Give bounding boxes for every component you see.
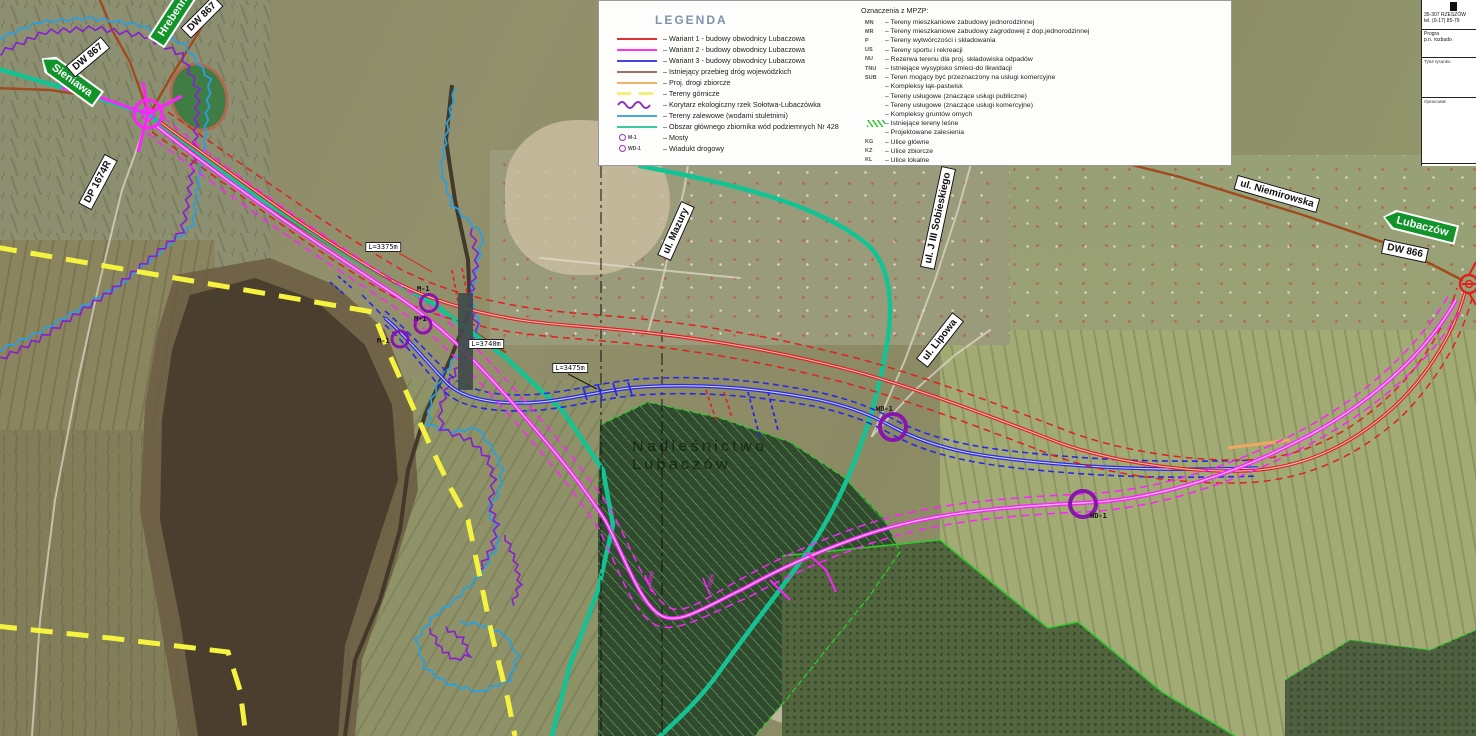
legend-swatch-line — [617, 82, 659, 84]
mpzp-item-label: Tereny wytwórczości i składowania — [885, 37, 996, 44]
mpzp-code: SUB — [859, 75, 885, 81]
mpzp-item: KLUlice lokalne — [859, 156, 1231, 165]
legend-item-label: Istniejący przebieg dróg wojewódzkich — [663, 67, 791, 76]
legend-item-label: Tereny zalewowe (wodami stuletnimi) — [663, 111, 788, 120]
legend-item: Wariant 3 - budowy obwodnicy Lubaczowa — [617, 55, 855, 66]
mpzp-code: KL — [859, 157, 885, 163]
mpzp-item-label: Teren mogący być przeznaczony na usługi … — [885, 74, 1055, 81]
legend-title: LEGENDA — [655, 13, 855, 27]
mpzp-item: Projektowane zalesienia — [859, 128, 1231, 137]
title-block-phone: tel. (0-17) 85-79 — [1424, 18, 1474, 24]
viaduct-label: WD-1 — [876, 405, 893, 413]
legend-structure-code: WD-1 — [628, 146, 641, 152]
mpzp-code: P — [859, 38, 885, 44]
legend-item-label: Mosty — [663, 133, 688, 142]
forest-hatch-swatch — [867, 120, 885, 127]
legend-swatch-line — [617, 71, 659, 73]
flood-boundary — [0, 16, 519, 692]
mpzp-item: KZUlice zbiorcze — [859, 147, 1231, 156]
mpzp-items: MNTereny mieszkaniowe zabudowy jednorodz… — [859, 18, 1231, 165]
viaduct-label: WD-1 — [1090, 512, 1107, 520]
legend-swatch-line — [617, 49, 659, 51]
mpzp-item: Istniejące tereny leśne — [859, 119, 1231, 128]
mpzp-item: NURezerwa terenu dla proj. składowiska o… — [859, 55, 1231, 64]
legend-item: Istniejący przebieg dróg wojewódzkich — [617, 66, 855, 77]
legend-item: M-1Mosty — [617, 132, 855, 143]
title-block-drawing: Tytuł rysunku — [1422, 58, 1476, 98]
mpzp-item-label: Kompleksy łąk-pastwisk — [885, 83, 963, 90]
length-label-variant3: L=3475m — [552, 363, 588, 373]
legend-item: Wariant 1 - budowy obwodnicy Lubaczowa — [617, 33, 855, 44]
mining-boundary — [0, 247, 515, 736]
title-block-project: Progra p.n. rozbudo — [1422, 30, 1476, 58]
mpzp-code: KZ — [859, 148, 885, 154]
mpzp-item-label: Tereny usługowe (znaczące usługi publicz… — [885, 93, 1027, 100]
length-label-variant1: L=3375m — [365, 242, 401, 252]
legend-swatch-circle: WD-1 — [617, 145, 659, 152]
structure-circles — [392, 295, 1096, 518]
mpzp-item-label: Ulice główne — [885, 139, 929, 146]
mpzp-item: Kompleksy łąk-pastwisk — [859, 82, 1231, 91]
legend-swatch-line — [617, 126, 659, 128]
length-label-variant2: L=3740m — [468, 339, 504, 349]
legend-item-label: Wariant 2 - budowy obwodnicy Lubaczowa — [663, 45, 805, 54]
mpzp-item: Tereny usługowe (znaczące usługi komercy… — [859, 101, 1231, 110]
company-logo — [1450, 2, 1457, 11]
legend-item: Korytarz ekologiczny rzek Sołotwa-Lubacz… — [617, 99, 855, 110]
mpzp-code: TNU — [859, 66, 885, 72]
legend-swatch-wavy — [617, 101, 659, 109]
mpzp-item: PTereny wytwórczości i składowania — [859, 36, 1231, 45]
legend-panel: LEGENDA Wariant 1 - budowy obwodnicy Lub… — [598, 0, 1232, 166]
bridge-label: M-1 — [414, 315, 427, 323]
title-block-author: Opracował — [1422, 98, 1476, 164]
legend-item: Tereny zalewowe (wodami stuletnimi) — [617, 110, 855, 121]
legend-item: WD-1Wiadukt drogowy — [617, 143, 855, 154]
mpzp-item-label: Ulice zbiorcze — [885, 148, 933, 155]
mpzp-item: SUBTeren mogący być przeznaczony na usłu… — [859, 73, 1231, 82]
legend-item: Tereny górnicze — [617, 88, 855, 99]
legend-item: Wariant 2 - budowy obwodnicy Lubaczowa — [617, 44, 855, 55]
title-block: 35-307 RZESZÓW tel. (0-17) 85-79 Progra … — [1421, 0, 1476, 166]
mpzp-item-label: Tereny usługowe (znaczące usługi komercy… — [885, 102, 1033, 109]
legend-structure-code: M-1 — [628, 135, 637, 141]
mpzp-code: MR — [859, 29, 885, 35]
legend-swatch-dashes — [617, 92, 659, 95]
mpzp-item-label: Istniejące wysypisko śmieci-do likwidacj… — [885, 65, 1012, 72]
mpzp-item: KGUlice główne — [859, 137, 1231, 146]
eco-corridor — [0, 26, 522, 660]
legend-swatch-circle: M-1 — [617, 134, 659, 141]
mpzp-code: US — [859, 47, 885, 53]
mpzp-item-label: Projektowane zalesienia — [885, 129, 964, 136]
mpzp-item: TNUIstniejące wysypisko śmieci-do likwid… — [859, 64, 1231, 73]
mpzp-item-label: Rezerwa terenu dla proj. składowiska odp… — [885, 56, 1033, 63]
bridge-label: M-1 — [377, 337, 390, 345]
legend-left-column: LEGENDA Wariant 1 - budowy obwodnicy Lub… — [599, 1, 855, 165]
legend-item-label: Proj. drogi zbiorcze — [663, 78, 731, 87]
legend-item-label: Korytarz ekologiczny rzek Sołotwa-Lubacz… — [663, 100, 821, 109]
variant1-route — [152, 112, 1476, 483]
mpzp-item: Kompleksy gruntów ornych — [859, 110, 1231, 119]
legend-item-label: Wariant 1 - budowy obwodnicy Lubaczowa — [663, 34, 805, 43]
legend-items: Wariant 1 - budowy obwodnicy LubaczowaWa… — [617, 33, 855, 154]
mpzp-item: MRTereny mieszkaniowe zabudowy zagrodowe… — [859, 27, 1231, 36]
mpzp-item-label: Tereny mieszkaniowe zabudowy jednorodzin… — [885, 19, 1034, 26]
legend-item-label: Wiadukt drogowy — [663, 144, 724, 153]
mpzp-code: KG — [859, 139, 885, 145]
legend-item-label: Tereny górnicze — [663, 89, 720, 98]
mpzp-item: Tereny usługowe (znaczące usługi publicz… — [859, 92, 1231, 101]
aquifer-boundary — [0, 68, 890, 736]
legend-mpzp-column: Oznaczenia z MPZP: MNTereny mieszkaniowe… — [855, 1, 1231, 165]
mpzp-item-label: Istniejące tereny leśne — [885, 120, 958, 127]
mpzp-item: USTereny sportu i rekreacji — [859, 46, 1231, 55]
mpzp-item-label: Tereny mieszkaniowe zabudowy zagrodowej … — [885, 28, 1089, 35]
legend-item-label: Obszar głównego zbiornika wód podziemnyc… — [663, 122, 839, 131]
legend-swatch-line — [617, 38, 659, 40]
legend-swatch-line — [617, 60, 659, 62]
mpzp-item-label: Tereny sportu i rekreacji — [885, 47, 963, 54]
legend-item: Proj. drogi zbiorcze — [617, 77, 855, 88]
mpzp-item-label: Ulice lokalne — [885, 157, 929, 164]
map-canvas: Sieniawa Hrebenne Lubaczów DW 867 DW 867… — [0, 0, 1476, 736]
mpzp-code — [859, 120, 885, 127]
legend-item: Obszar głównego zbiornika wód podziemnyc… — [617, 121, 855, 132]
bridge-label: M-1 — [417, 285, 430, 293]
mpzp-code: NU — [859, 56, 885, 62]
forest-district-label: Nadleśnictwo Lubaczów — [632, 438, 767, 474]
mpzp-item: MNTereny mieszkaniowe zabudowy jednorodz… — [859, 18, 1231, 27]
legend-item-label: Wariant 3 - budowy obwodnicy Lubaczowa — [663, 56, 805, 65]
mpzp-item-label: Kompleksy gruntów ornych — [885, 111, 972, 118]
legend-swatch-line — [617, 115, 659, 117]
title-block-header: 35-307 RZESZÓW tel. (0-17) 85-79 — [1422, 0, 1476, 30]
mpzp-code: MN — [859, 20, 885, 26]
mpzp-title: Oznaczenia z MPZP: — [861, 6, 1231, 15]
